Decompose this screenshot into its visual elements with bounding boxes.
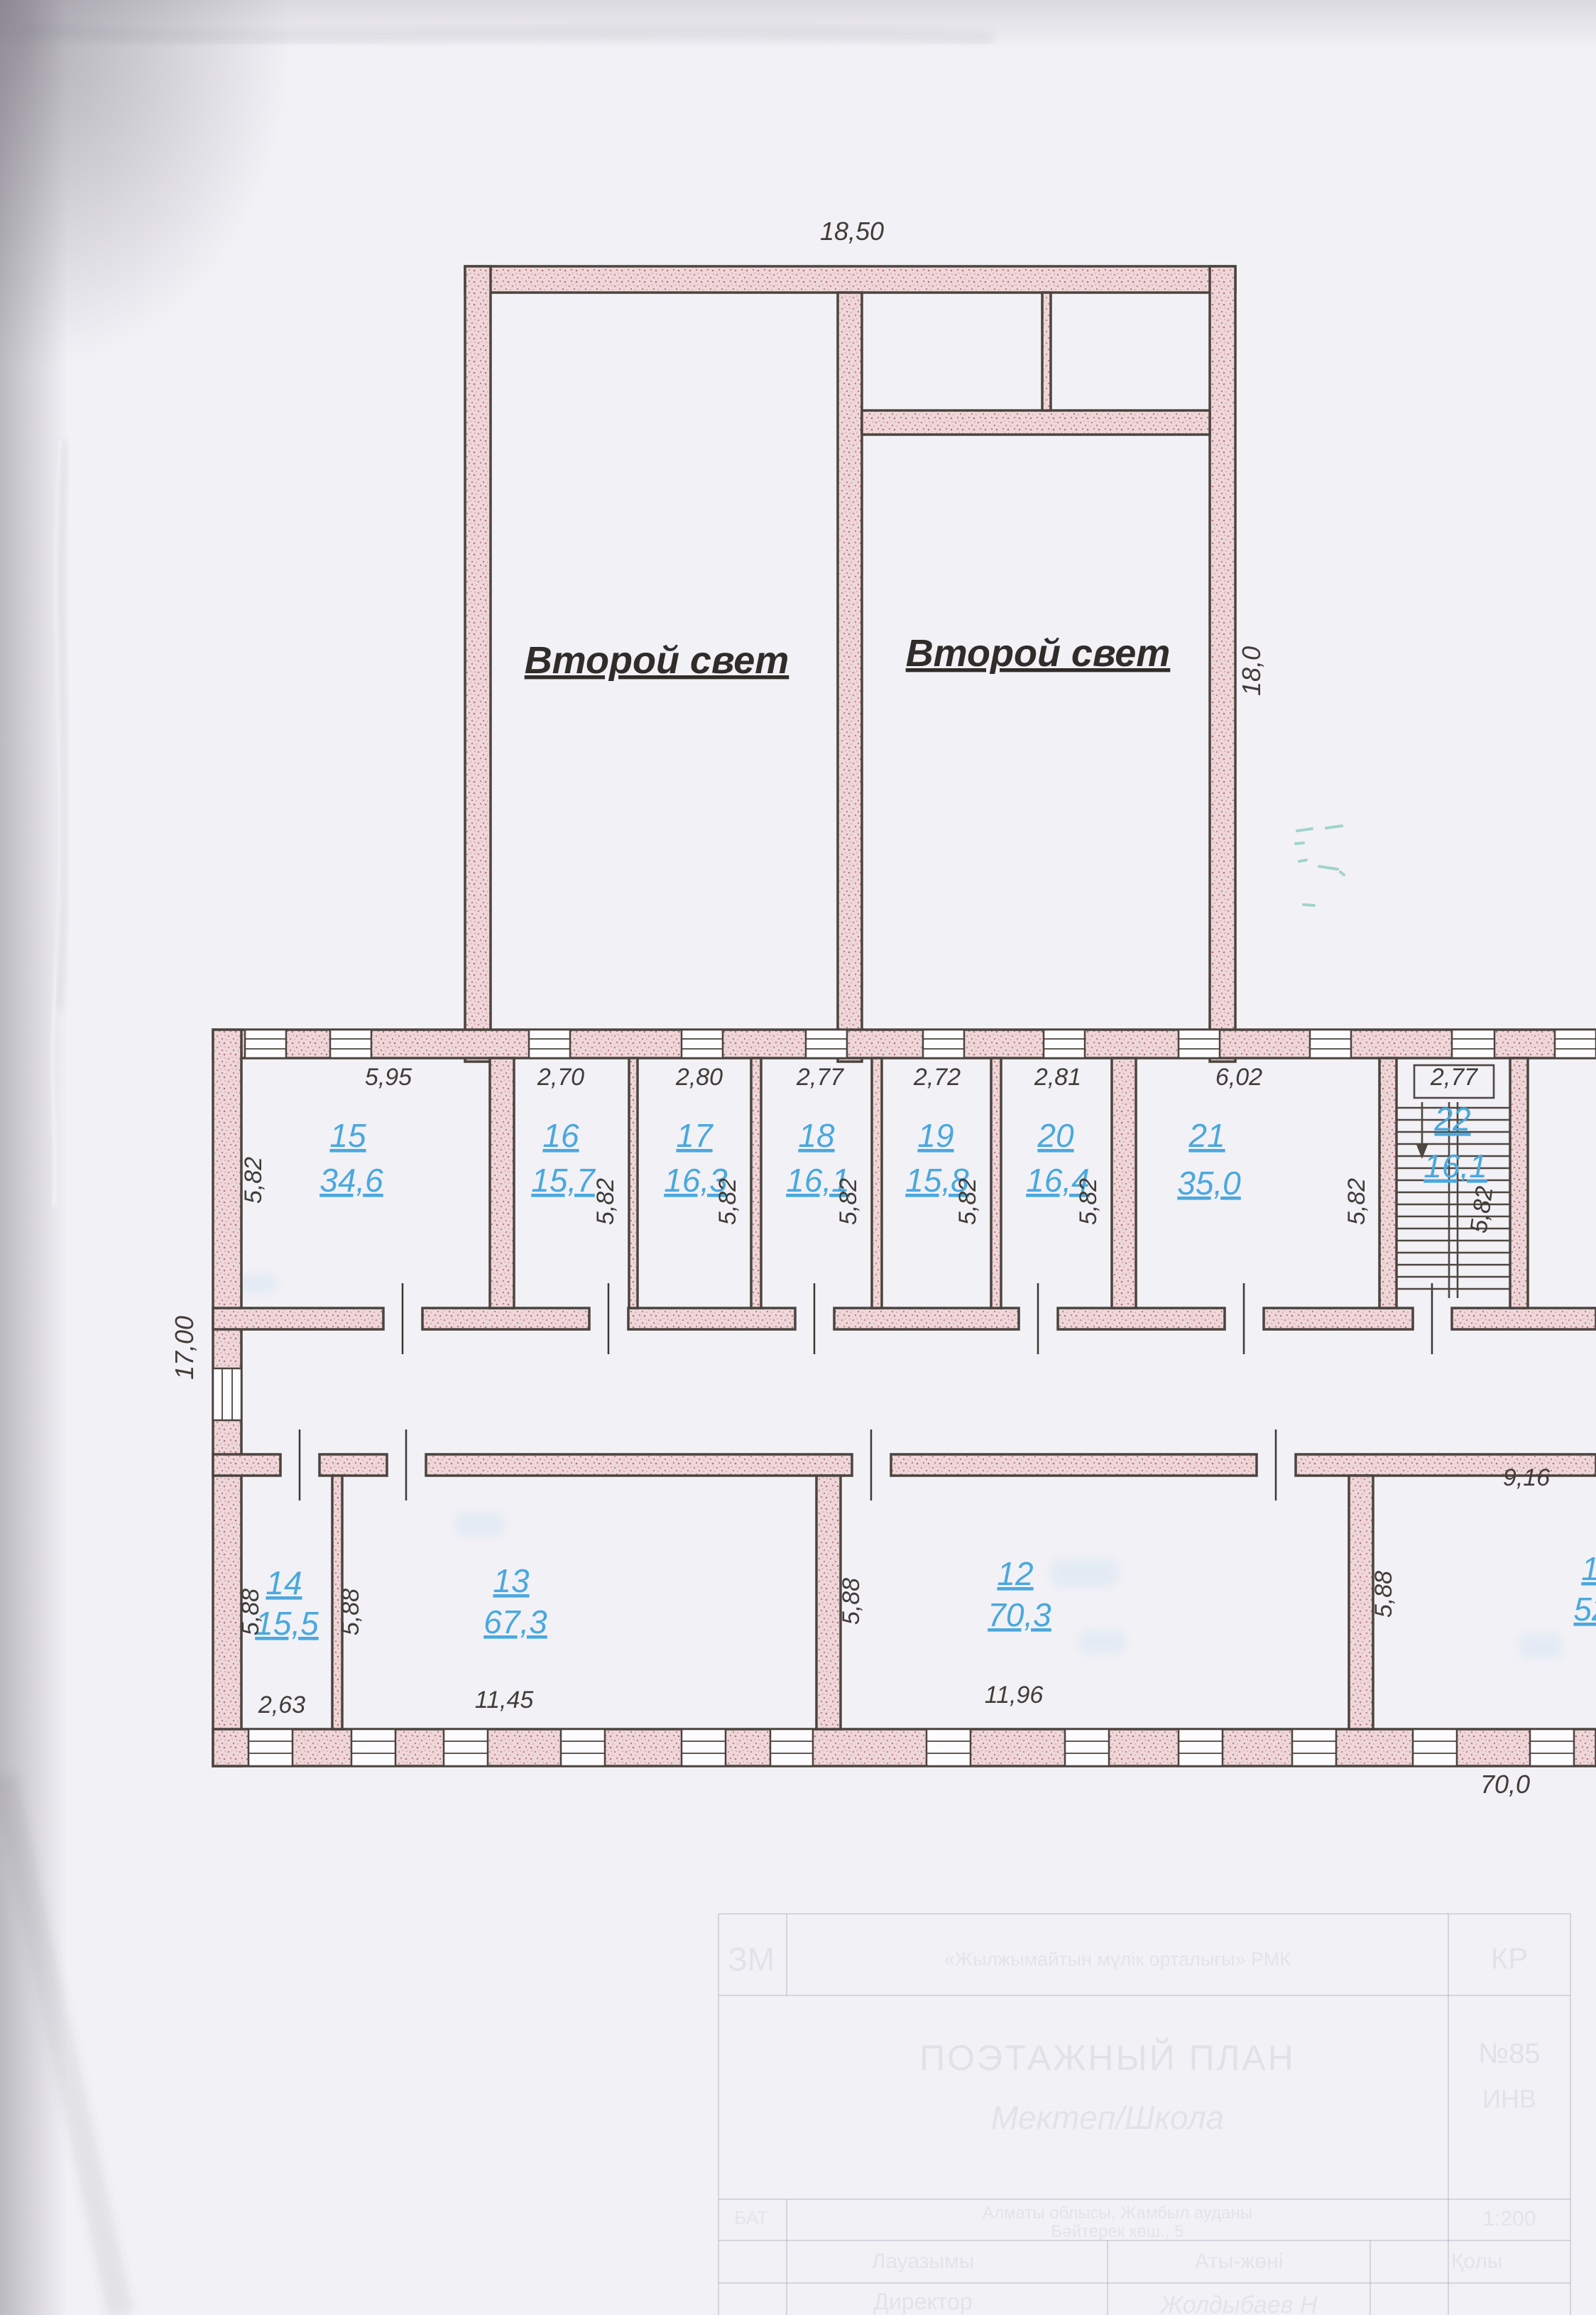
green-ink-marks (1296, 826, 1344, 905)
dim-room-15-depth: 5,82 (240, 1157, 267, 1204)
tb-object-name: Мектеп/Школа (991, 2099, 1224, 2136)
room-16-number: 16 (542, 1117, 579, 1154)
tb-scale: 1:200 (1482, 2207, 1536, 2230)
room-22-number: 22 (1433, 1101, 1470, 1138)
wall-div-stair-right (1510, 1058, 1528, 1308)
wall-corridor-north-seg (1264, 1308, 1413, 1329)
room-12-number: 12 (997, 1555, 1033, 1592)
tb-address-line1: Алматы облысы, Жамбыл ауданы (983, 2204, 1252, 2223)
room-21-number: 21 (1188, 1117, 1225, 1154)
title-block-bleedthrough: ЗМ «Жылжымайтын мүлік орталығы» РМК КР П… (718, 1914, 1570, 2315)
wall-div-18-19 (872, 1058, 882, 1308)
dim-room-17-width: 2,80 (675, 1064, 723, 1091)
tb-region-code: КР (1491, 1941, 1528, 1975)
dim-overall-right: 18,0 (1237, 646, 1266, 696)
dim-overall-left: 17,00 (170, 1316, 199, 1380)
tb-col-position: Лауазымы (872, 2250, 975, 2273)
dim-room-15-width: 5,95 (365, 1064, 412, 1091)
dim-room-21-depth: 5,82 (1343, 1178, 1370, 1225)
tb-org-name: «Жылжымайтын мүлік орталығы» РМК (944, 1949, 1291, 1970)
wall-small-rooms-divider (1042, 293, 1051, 410)
room-19-number: 19 (917, 1117, 953, 1154)
room-13-area: 67,3 (483, 1603, 547, 1640)
wall-corridor-north-seg (213, 1308, 383, 1329)
dim-room-13-width: 11,45 (475, 1687, 534, 1714)
wall-corridor-north-seg (422, 1308, 589, 1329)
wall-corridor-south-seg (319, 1454, 387, 1476)
wall-top-block-right (1210, 266, 1235, 1062)
dim-room-17-depth: 5,82 (714, 1178, 741, 1225)
tb-inventory-number: №85 (1478, 2038, 1540, 2069)
room-14-area: 15,5 (255, 1605, 319, 1642)
dim-room-12-width: 11,96 (985, 1682, 1044, 1709)
dim-room-22-width: 2,77 (1430, 1064, 1478, 1091)
tb-inventory-label: ИНВ (1482, 2084, 1536, 2113)
tb-row-director: Директор (873, 2289, 972, 2314)
dim-room-12-depth: 5,88 (838, 1578, 865, 1625)
scanned-floor-plan-sheet: ЗМ «Жылжымайтын мүлік орталығы» РМК КР П… (0, 0, 1596, 2315)
room-11-area: 52 (1573, 1591, 1596, 1628)
wall-corridor-south-seg (426, 1454, 852, 1476)
wall-top-block-top (465, 266, 1235, 293)
wall-div-12-11 (1349, 1476, 1373, 1729)
dim-overall-bottom: 70,0 (1480, 1770, 1530, 1799)
room-20-number: 20 (1037, 1117, 1074, 1154)
wall-div-15-16 (490, 1058, 514, 1308)
tb-org-code: ЗМ (728, 1941, 775, 1978)
dim-room-19-width: 2,72 (913, 1064, 961, 1091)
room-15-number: 15 (329, 1117, 366, 1154)
plan-labels: 18,50 18,0 17,00 70,0 Второй свет Второй… (170, 217, 1596, 1799)
tb-director-name: Жолдыбаев Н (1159, 2292, 1317, 2315)
wall-corridor-north-seg (1058, 1308, 1225, 1329)
window-left-wall (213, 1368, 241, 1420)
dim-room-18-depth: 5,82 (835, 1178, 862, 1225)
wall-div-13-12 (816, 1476, 841, 1729)
wall-div-21-stair (1379, 1058, 1396, 1308)
room-14-number: 14 (266, 1564, 302, 1601)
tb-address-line2: Бәйтерек көш., 5 (1051, 2222, 1184, 2241)
wall-div-19-20 (991, 1058, 1001, 1308)
wall-div-20-21 (1112, 1058, 1136, 1308)
wall-facade-top (213, 1030, 1596, 1058)
tb-plan-title: ПОЭТАЖНЫЙ ПЛАН (919, 2037, 1296, 2078)
second-light-label-left: Второй свет (525, 639, 789, 682)
dim-room-20-depth: 5,82 (1075, 1178, 1102, 1225)
wall-corridor-north-seg (834, 1308, 1019, 1329)
dim-room-11-depth: 5,88 (1370, 1571, 1397, 1618)
room-16-area: 15,7 (531, 1162, 596, 1199)
room-12-area: 70,3 (988, 1596, 1051, 1633)
dim-room-22-depth: 5,82 (1465, 1184, 1499, 1235)
tb-left-stub: БАТ (734, 2207, 768, 2228)
dim-overall-top: 18,50 (820, 217, 884, 246)
dim-room-16-depth: 5,82 (592, 1178, 619, 1225)
dim-room-13-depth: 5,88 (337, 1589, 364, 1635)
wall-outer-bottom (213, 1729, 1596, 1766)
wall-corridor-south-seg (891, 1454, 1257, 1476)
second-light-label-right: Второй свет (906, 632, 1171, 675)
room-18-number: 18 (798, 1117, 835, 1154)
dim-room-14-depth: 5,88 (237, 1589, 264, 1635)
room-15-area: 34,6 (319, 1162, 383, 1199)
wall-corridor-north-seg (628, 1308, 795, 1329)
dim-room-19-depth: 5,82 (954, 1178, 981, 1225)
room-11-number: 1 (1581, 1550, 1596, 1587)
wall-top-block-divider (838, 293, 862, 1062)
wall-corridor-south-seg (1296, 1454, 1596, 1476)
tb-col-signature: Қолы (1451, 2250, 1503, 2273)
dim-room-20-width: 2,81 (1034, 1064, 1081, 1091)
dim-room-14-width: 2,63 (258, 1692, 305, 1718)
walls-layer (213, 266, 1596, 1766)
tb-col-name: Аты-жөні (1195, 2250, 1284, 2273)
wall-div-16-17 (629, 1058, 638, 1308)
wall-corridor-north-seg (1452, 1308, 1596, 1329)
dim-room-16-width: 2,70 (537, 1064, 584, 1091)
dim-room-11-width: 9,16 (1503, 1464, 1550, 1491)
room-21-area: 35,0 (1177, 1165, 1241, 1202)
wall-corridor-south-seg (213, 1454, 280, 1476)
room-13-number: 13 (493, 1562, 530, 1599)
wall-small-rooms-bottom (862, 410, 1210, 435)
room-17-number: 17 (676, 1117, 714, 1154)
dim-room-21-width: 6,02 (1215, 1064, 1262, 1091)
room-22-area: 16,1 (1423, 1148, 1487, 1184)
wall-div-17-18 (751, 1058, 761, 1308)
wall-top-block-left (465, 266, 491, 1062)
dim-room-18-width: 2,77 (796, 1064, 844, 1091)
